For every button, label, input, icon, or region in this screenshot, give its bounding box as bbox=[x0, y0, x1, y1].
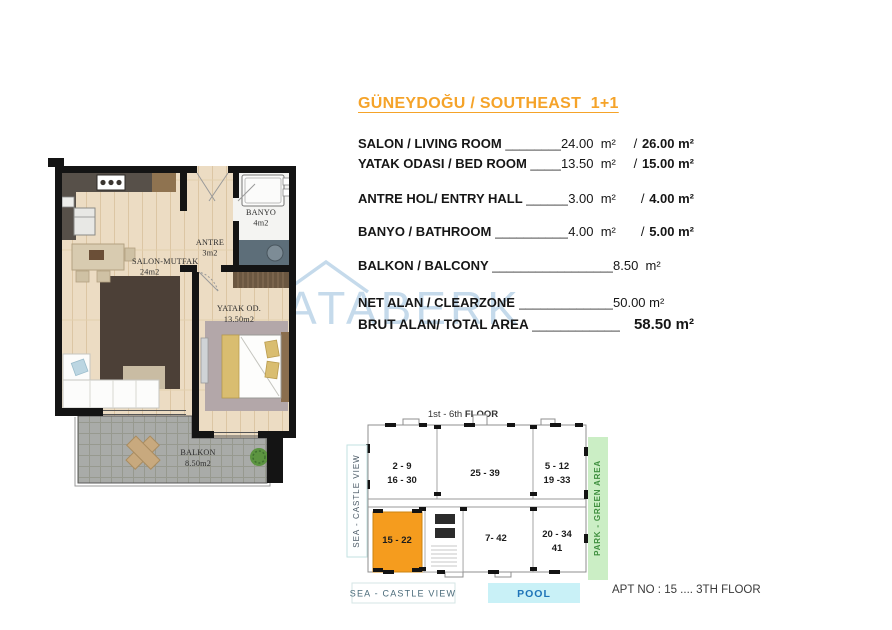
antre-area: 3m2 bbox=[202, 249, 217, 258]
sink-icon bbox=[62, 197, 74, 207]
page-title: GÜNEYDOĞU / SOUTHEAST 1+1 bbox=[358, 95, 619, 113]
room-label: ANTRE HOL/ ENTRY HALL bbox=[358, 191, 526, 206]
area-row-antre: ANTRE HOL/ ENTRY HALL __________________… bbox=[358, 191, 694, 211]
net-area: 3.00 m² bbox=[568, 191, 636, 206]
area-row-balkon: BALKON / BALCONY ______________________8… bbox=[358, 258, 694, 278]
unit-label: 16 - 30 bbox=[387, 475, 417, 486]
slash: / bbox=[636, 191, 649, 206]
banyo-label: BANYO bbox=[246, 208, 276, 217]
tv-unit bbox=[201, 338, 208, 383]
room-label: YATAK ODASI / BED ROOM bbox=[358, 156, 530, 171]
balkon-area: 8.50m2 bbox=[185, 459, 211, 468]
sea-castle-view-bottom-label: SEA - CASTLE VIEW bbox=[350, 589, 456, 599]
dotted-fill: ______________________ bbox=[519, 295, 613, 310]
net-area: 4.00 m² bbox=[568, 224, 636, 239]
building-keyplan: 1st - 6th FLOOR bbox=[345, 402, 645, 607]
unit-label: 7- 42 bbox=[485, 533, 507, 544]
slash: / bbox=[629, 156, 642, 171]
unit-label: 5 - 12 bbox=[545, 461, 569, 472]
banyo-area: 4m2 bbox=[253, 219, 268, 228]
pillow bbox=[265, 340, 280, 358]
apartment-floor-notes: APT NO : 15 .... 3TH FLOOR APT NO : 22 .… bbox=[612, 547, 761, 630]
sea-castle-view-left-label: SEA - CASTLE VIEW bbox=[352, 454, 361, 547]
headboard bbox=[281, 332, 289, 402]
balkon-label: BALKON bbox=[180, 448, 215, 457]
salon-area: 24m2 bbox=[140, 268, 159, 277]
room-label: BANYO / BATHROOM bbox=[358, 224, 495, 239]
net-area: 13.50 m² bbox=[561, 156, 629, 171]
area-row-gross-total: BRUT ALAN/ TOTAL AREA ______________58.5… bbox=[358, 316, 694, 336]
apartment-floorplan: SALON-MUTFAK 24m2 ANTRE 3m2 BANYO 4m2 YA… bbox=[45, 158, 300, 498]
apt-note: APT NO : 15 .... 3TH FLOOR bbox=[612, 582, 761, 600]
area-row-banyo: BANYO / BATHROOM ______________________4… bbox=[358, 224, 694, 244]
pillow bbox=[265, 361, 279, 379]
gross-area: 5.00 m² bbox=[649, 224, 694, 239]
unit-label-highlighted: 15 - 22 bbox=[382, 535, 412, 546]
unit-label: 19 -33 bbox=[544, 475, 571, 486]
area-info-panel: GÜNEYDOĞU / SOUTHEAST 1+1 SALON / LIVING… bbox=[358, 95, 694, 336]
slash: / bbox=[636, 224, 649, 239]
unit-label: 25 - 39 bbox=[470, 468, 500, 479]
net-area: 50.00 m² bbox=[613, 295, 681, 310]
area-row-net-total: NET ALAN / CLEARZONE ___________________… bbox=[358, 295, 694, 315]
room-label: BRUT ALAN/ TOTAL AREA bbox=[358, 317, 532, 332]
gross-area: 4.00 m² bbox=[649, 191, 694, 206]
room-label: BALKON / BALCONY bbox=[358, 258, 492, 273]
wardrobe bbox=[233, 272, 289, 288]
bedroom bbox=[201, 321, 289, 411]
dotted-fill: ______________________ bbox=[530, 156, 561, 171]
dotted-fill: ______________ bbox=[532, 317, 620, 332]
slash: / bbox=[629, 136, 642, 151]
salon-label: SALON-MUTFAK bbox=[132, 257, 198, 266]
dotted-fill: ______________________ bbox=[492, 258, 613, 273]
antre-label: ANTRE bbox=[196, 238, 224, 247]
pool-label: POOL bbox=[517, 588, 551, 600]
fridge-icon bbox=[74, 208, 95, 235]
net-area: 24.00 m² bbox=[561, 136, 629, 151]
room-label: SALON / LIVING ROOM bbox=[358, 136, 505, 151]
area-row-salon: SALON / LIVING ROOM ____________________… bbox=[358, 136, 694, 156]
sink-icon bbox=[267, 245, 283, 261]
dotted-fill: ______________________ bbox=[505, 136, 561, 151]
brochure-page: ATABERK GÜNEYDOĞU / SOUTHEAST 1+1 SALON … bbox=[0, 0, 892, 630]
gross-area: 26.00 m² bbox=[642, 136, 694, 151]
stair-core bbox=[425, 507, 463, 572]
cabinet bbox=[152, 173, 176, 192]
gross-area: 15.00 m² bbox=[642, 156, 694, 171]
dotted-fill: ______________________ bbox=[495, 224, 568, 239]
net-area: 8.50 m² bbox=[613, 258, 681, 273]
area-row-yatak: YATAK ODASI / BED ROOM _________________… bbox=[358, 156, 694, 176]
park-green-area-label: PARK - GREEN AREA bbox=[593, 460, 602, 556]
yatak-area: 13.50m2 bbox=[224, 315, 254, 324]
unit-label: 2 - 9 bbox=[392, 461, 411, 472]
yatak-label: YATAK OD. bbox=[217, 304, 261, 313]
room-label: NET ALAN / CLEARZONE bbox=[358, 295, 519, 310]
gross-area: 58.50 m² bbox=[634, 316, 694, 333]
unit-label: 41 bbox=[552, 543, 563, 554]
dotted-fill: ______________________ bbox=[526, 191, 568, 206]
unit-label: 20 - 34 bbox=[542, 529, 572, 540]
floor-title: 1st - 6th FLOOR bbox=[428, 409, 498, 420]
